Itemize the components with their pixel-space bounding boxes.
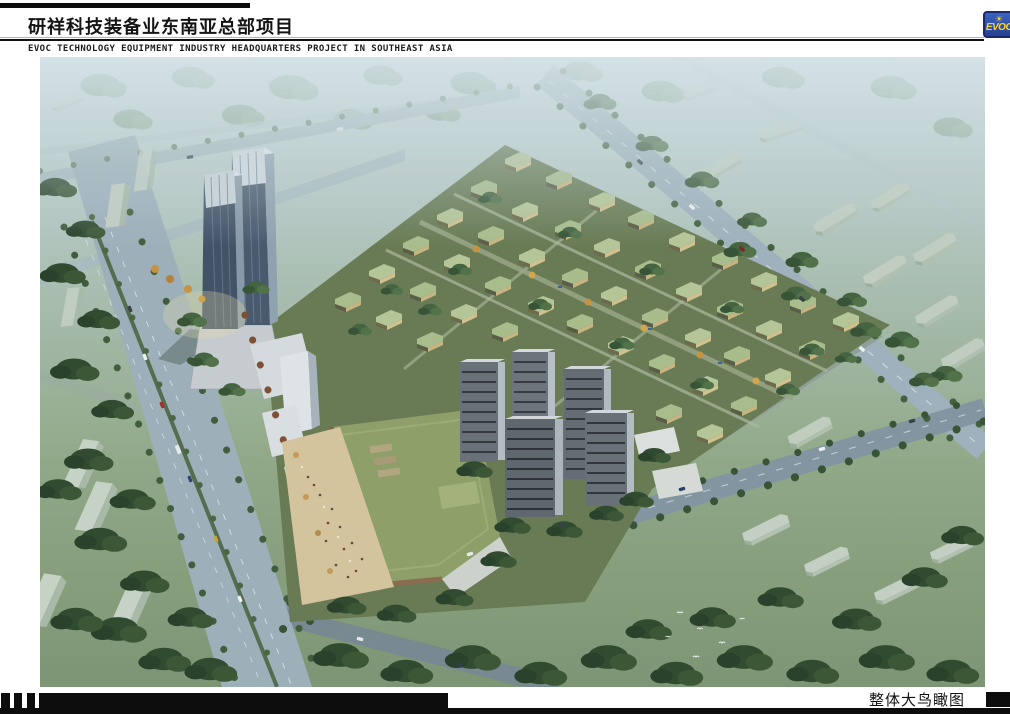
header-accent-bar — [0, 3, 250, 8]
drawing-caption: 整体大鸟瞰图 — [862, 689, 972, 710]
project-title-chinese: 研祥科技装备业东南亚总部项目 — [28, 13, 294, 39]
project-title-english: EVOC TECHNOLOGY EQUIPMENT INDUSTRY HEADQ… — [28, 44, 453, 54]
evoc-logo-text: EVOC — [986, 23, 1010, 33]
footer-corner-block — [986, 692, 1010, 707]
aerial-rendering-image — [40, 57, 985, 687]
presentation-board: { "header": { "title_cn": "研祥科技装备业东南亚总部项… — [0, 0, 1010, 714]
evoc-logo: ☀ EVOC — [983, 11, 1010, 38]
footer-bottom-strip — [0, 708, 1010, 714]
header-divider — [0, 39, 984, 41]
header-divider-thin — [0, 37, 984, 38]
